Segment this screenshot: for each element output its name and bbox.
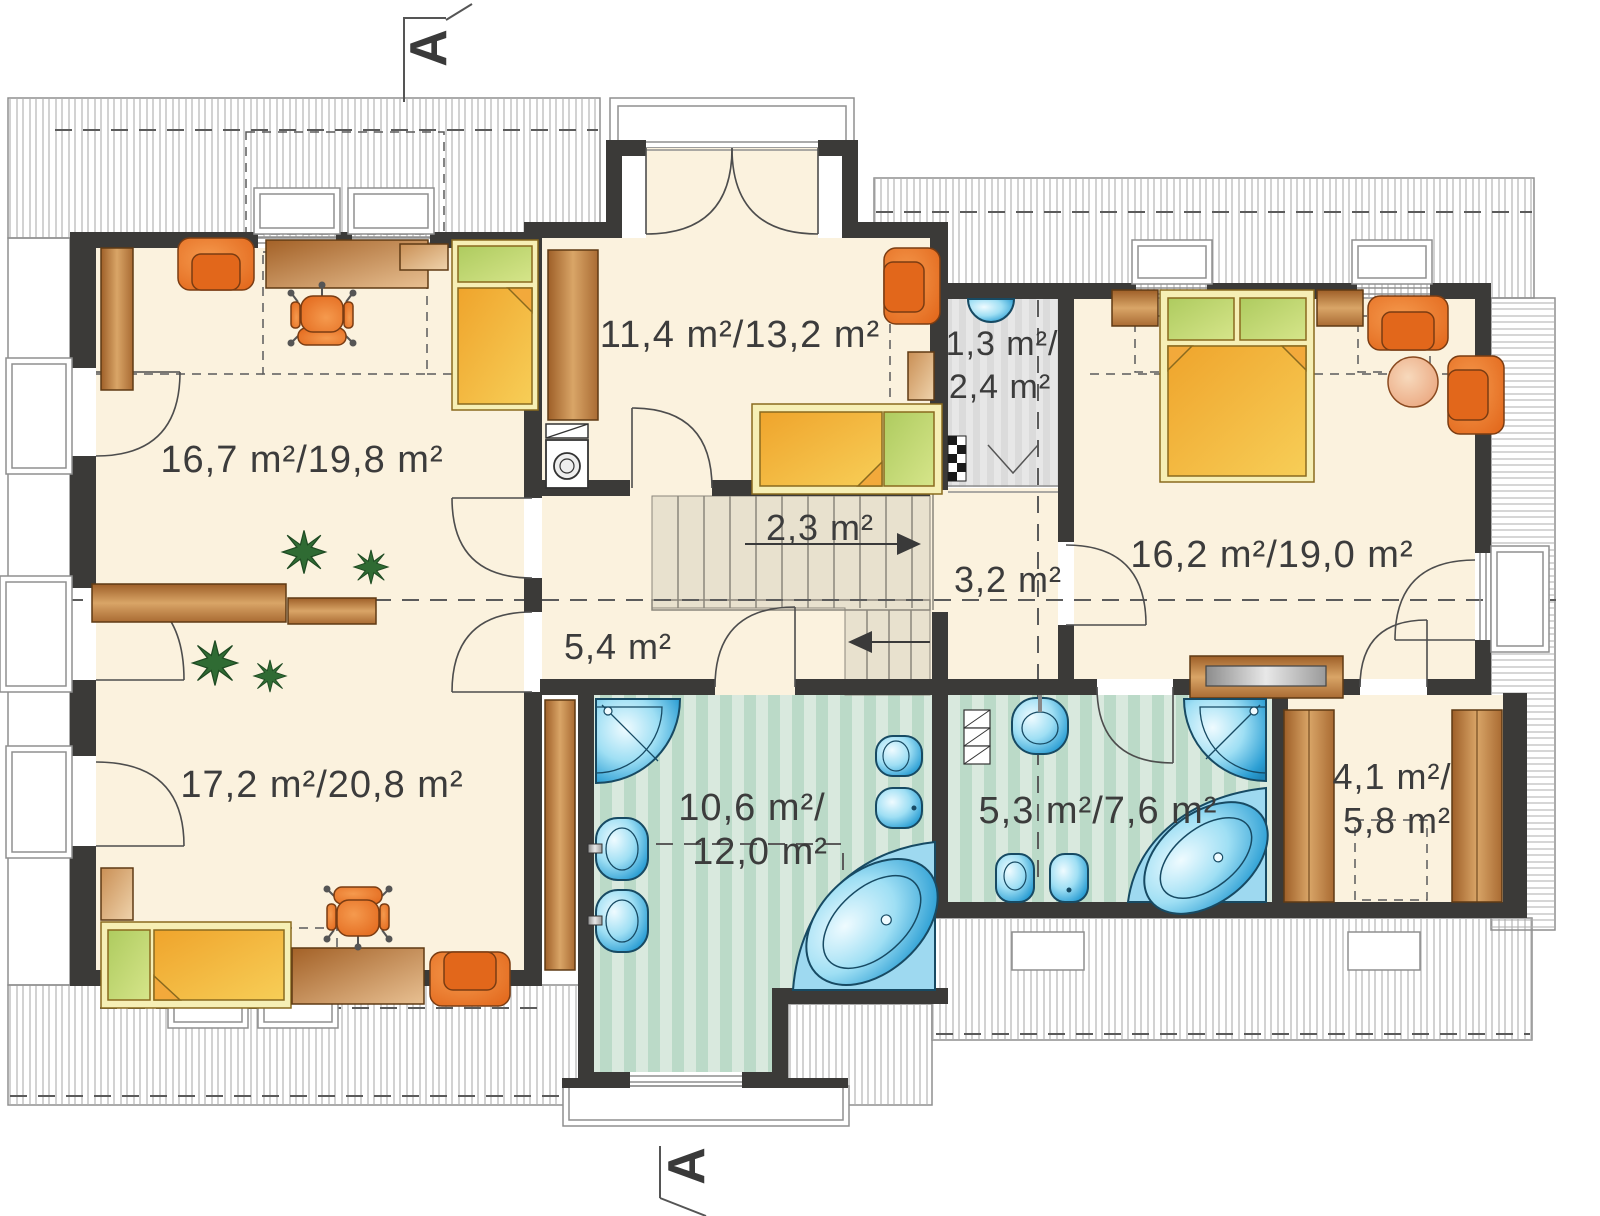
wardrobe: [545, 700, 575, 970]
label-stairs-area: 2,3 m²: [766, 507, 874, 548]
armchair: [178, 238, 254, 290]
desk: [292, 948, 424, 1004]
armchair: [430, 952, 510, 1006]
toilet: [876, 736, 922, 776]
single-bed: [752, 404, 942, 494]
single-bed: [101, 922, 291, 1008]
balcony-top: [610, 98, 854, 148]
armchair: [1368, 296, 1448, 350]
label-bedroom-right-area: 16,2 m²/19,0 m²: [1130, 534, 1413, 576]
label-bathroom-small-area: 5,3 m²/7,6 m²: [979, 790, 1218, 832]
label-wardrobe-top-area-2: 2,4 m²: [949, 368, 1051, 406]
label-room-bottom-left-area: 17,2 m²/20,8 m²: [180, 764, 463, 806]
label-middle-room-area: 11,4 m²/13,2 m²: [600, 314, 880, 356]
toilet: [996, 854, 1034, 902]
section-letter-top: A: [400, 29, 458, 67]
wardrobe: [1284, 710, 1334, 902]
single-bed: [452, 240, 538, 410]
cabinet: [101, 868, 133, 920]
section-letter-bottom: A: [658, 1147, 716, 1185]
wardrobe: [1452, 710, 1502, 902]
sink: [1012, 695, 1068, 754]
sideboard: [288, 598, 376, 624]
cabinet: [400, 244, 448, 270]
armchair: [1448, 356, 1504, 434]
label-hall-upper-area: 3,2 m²: [954, 559, 1062, 600]
round-table: [1388, 357, 1438, 407]
chimney-icon: [948, 436, 966, 481]
floor-plan-page: 16,7 m²/19,8 m² 11,4 m²/13,2 m² 1,3 m²/ …: [0, 0, 1600, 1216]
bidet: [876, 788, 922, 828]
label-closet-right-area-1: 4,1 m²/: [1332, 756, 1451, 797]
label-closet-right-area-2: 5,8 m²: [1343, 800, 1451, 841]
sideboard: [92, 584, 286, 622]
shelf-icon: [964, 710, 990, 764]
label-bathroom-main-area-1: 10,6 m²/: [678, 787, 825, 829]
label-wardrobe-top-area-1: 1,3 m²/: [946, 325, 1059, 363]
floor-bathroom-bay: [594, 988, 772, 1072]
label-bathroom-main-area-2: 12,0 m²: [692, 831, 828, 873]
nightstand: [1112, 290, 1158, 326]
balcony-bottom: [563, 1086, 849, 1126]
wardrobe: [548, 250, 598, 420]
double-bed: [1160, 290, 1314, 482]
nightstand: [1317, 290, 1363, 326]
wardrobe: [101, 248, 133, 390]
washing-machine: [546, 424, 588, 488]
side-table: [908, 352, 934, 400]
floor-plan-svg: 16,7 m²/19,8 m² 11,4 m²/13,2 m² 1,3 m²/ …: [0, 0, 1600, 1216]
dresser: [1190, 656, 1343, 698]
label-hall-lower-area: 5,4 m²: [564, 626, 672, 667]
label-study-area: 16,7 m²/19,8 m²: [160, 439, 443, 481]
armchair: [884, 248, 940, 324]
bidet: [1050, 854, 1088, 902]
